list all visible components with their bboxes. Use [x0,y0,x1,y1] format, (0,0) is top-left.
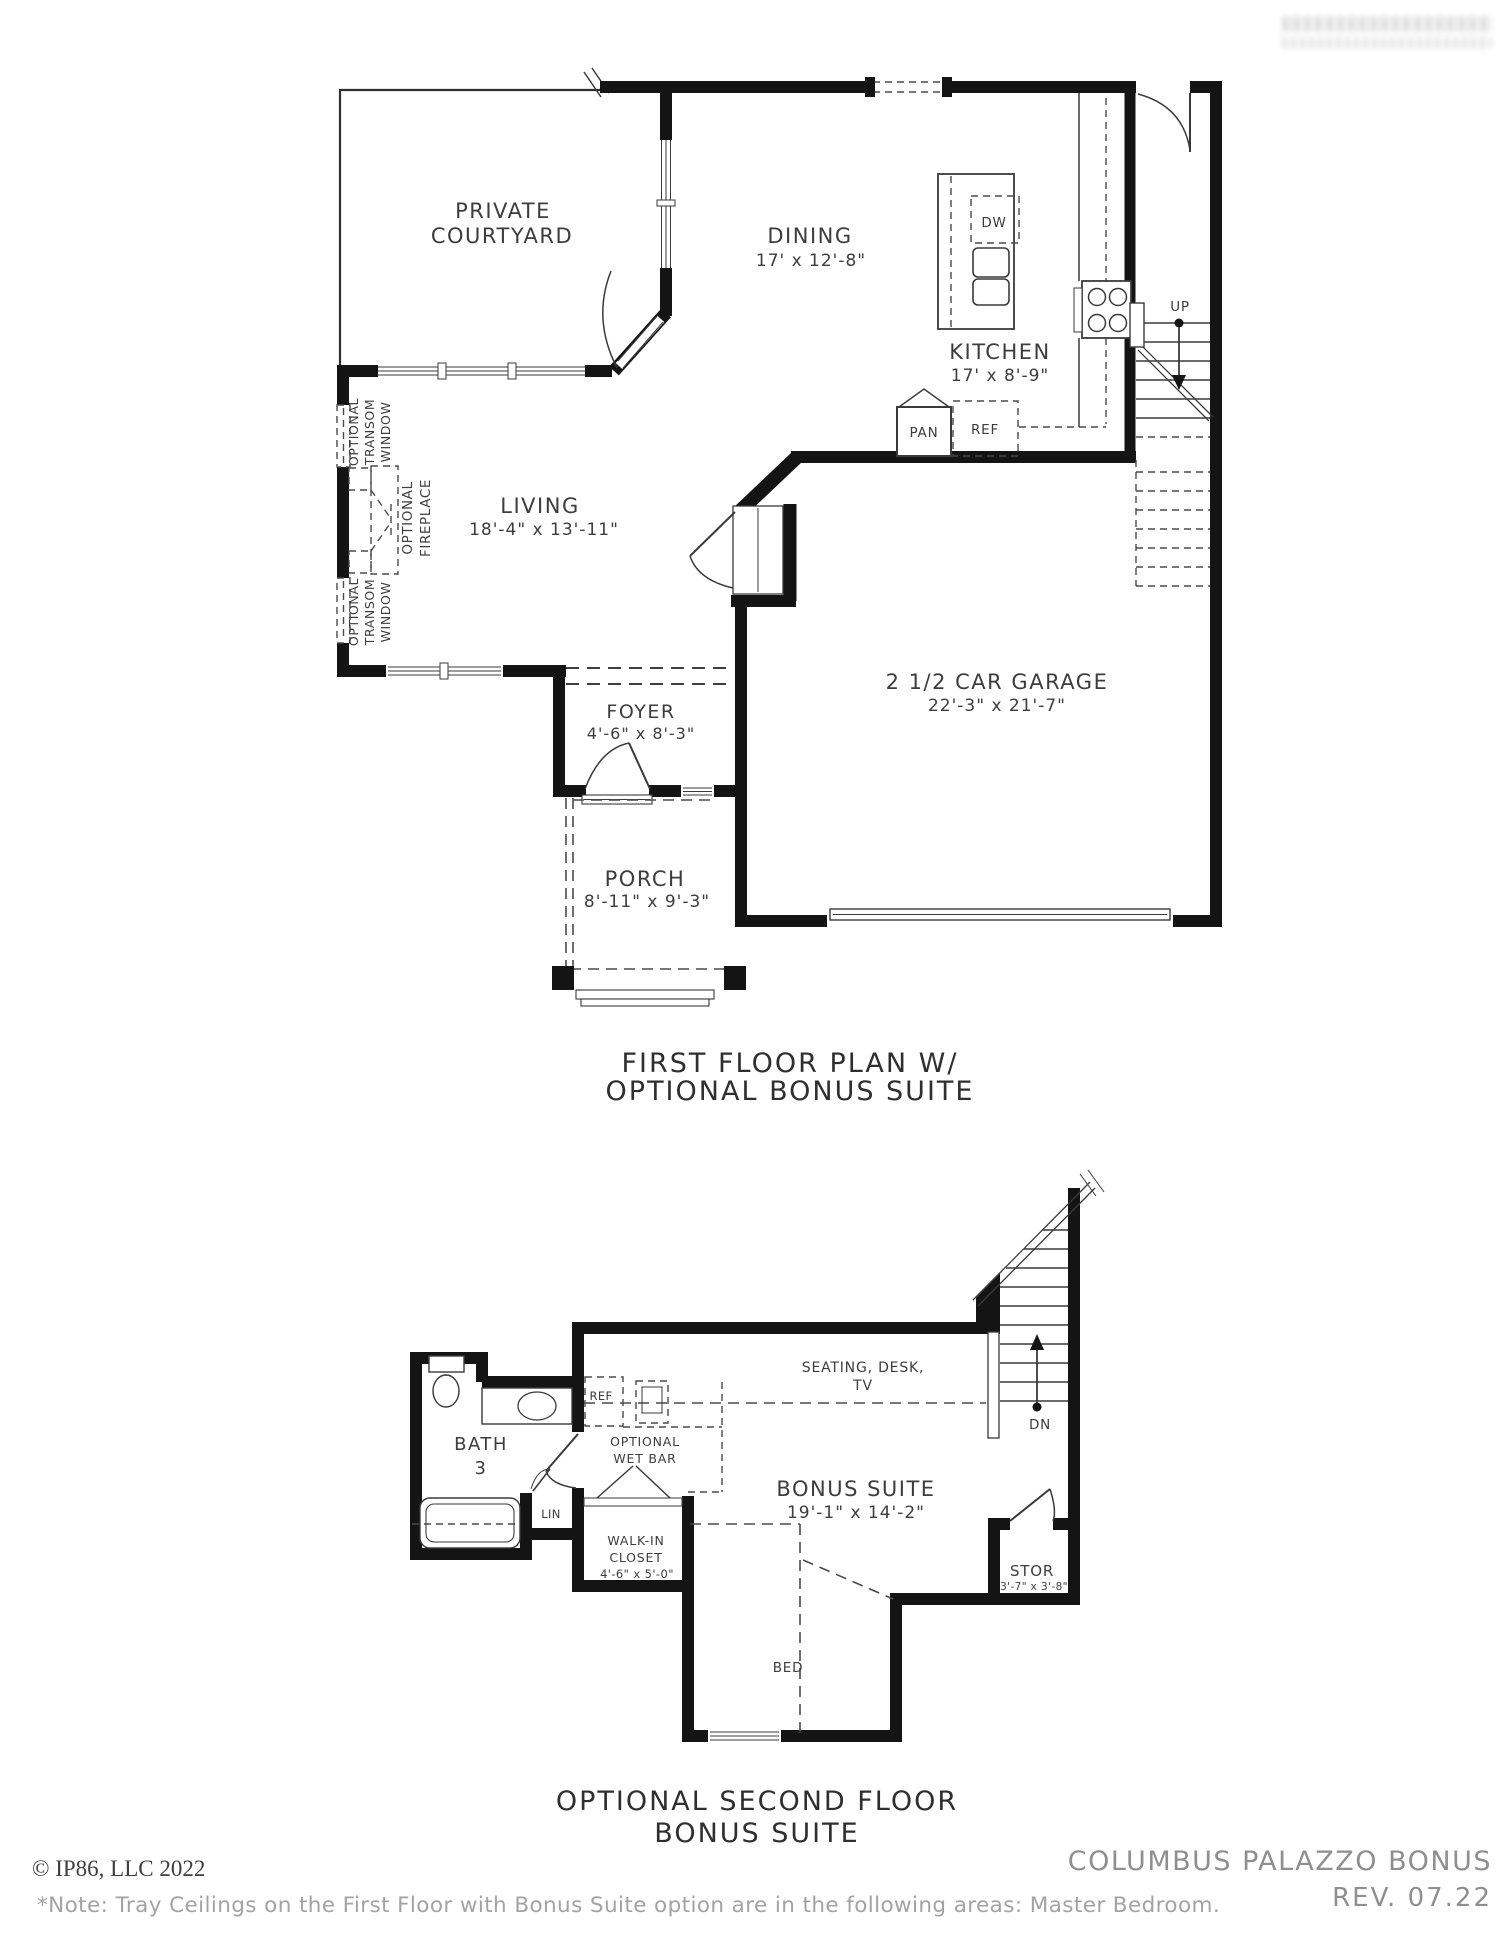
garage-dims: 22'-3" x 21'-7" [928,696,1066,716]
living-dims: 18'-4" x 13'-11" [469,520,619,540]
dw-label: DW [981,215,1006,231]
transom-annotation-top: OPTIONAL TRANSOM WINDOW [346,398,393,466]
bonus-label: BONUS SUITE [776,1477,935,1501]
dining-top-window [865,77,952,97]
lin-label: LIN [541,1507,561,1521]
dining-dims: 17' x 12'-8" [756,251,866,271]
entry-door [1138,93,1190,152]
porch-dims: 8'-11" x 9'-3" [584,892,710,912]
closet-dims: 4'-6" x 5'-0" [600,1567,674,1581]
pantry [897,389,951,456]
seating-label1: SEATING, DESK, [802,1360,924,1376]
annotation-line: WINDOW [378,402,393,463]
copyright-text: © IP86, LLC 2022 [32,1856,205,1881]
storage-door [1010,1489,1054,1521]
closet-label2: CLOSET [609,1550,662,1565]
annotation-line: TRANSOM [362,399,377,466]
sloped-ceiling-lines [690,1524,893,1733]
note-text: *Note: Tray Ceilings on the First Floor … [37,1893,1220,1918]
ref2-label: REF [589,1389,612,1403]
living-window [386,663,503,679]
watermark [1282,16,1492,58]
plan-name: COLUMBUS PALAZZO BONUS [1068,1846,1492,1877]
second-floor-walls [410,1188,1080,1742]
bonus-window [708,1729,781,1743]
bath-sink [482,1388,572,1424]
second-floor-caption-line1: OPTIONAL SECOND FLOOR [556,1786,958,1817]
foyer-label: FOYER [606,701,675,723]
lin-door [531,1469,550,1491]
floorplan-page: PRIVATE COURTYARD DINING 17' x 12'-8" KI… [0,0,1500,1941]
toilet [429,1356,464,1407]
bath-door [546,1434,578,1488]
bath-num: 3 [475,1458,488,1479]
ref-label: REF [971,422,999,438]
bed-label: BED [773,1660,804,1676]
transom-annotation-bottom: OPTIONAL TRANSOM WINDOW [346,578,393,646]
up-label: UP [1170,299,1190,315]
sink-basin [973,279,1009,305]
stor-label: STOR [1010,1562,1054,1580]
living-label: LIVING [500,494,579,518]
garage-door [830,909,1170,920]
up-arrow [1172,319,1186,391]
annotation-line: OPTIONAL [400,481,416,554]
watermark-row [1282,16,1492,32]
fireplace [349,466,398,574]
foyer-opening [566,668,734,684]
courtyard-label2: COURTYARD [431,224,573,248]
annotation-line: WINDOW [378,582,393,643]
kitchen-dims: 17' x 8'-9" [951,366,1049,386]
seating-label2: TV [852,1378,873,1394]
dn-arrow [1030,1334,1044,1412]
revision-text: REV. 07.22 [1332,1883,1492,1913]
fireplace-annotation: OPTIONAL FIREPLACE [400,479,434,557]
foyer-dims: 4'-6" x 8'-3" [587,724,695,743]
wetbar-label2: WET BAR [613,1451,676,1466]
wetbar-label1: OPTIONAL [610,1434,680,1449]
second-floor-caption-line2: BONUS SUITE [654,1818,859,1849]
first-floor-caption-line2: OPTIONAL BONUS SUITE [606,1076,975,1107]
bonus-dims: 19'-1" x 14'-2" [787,1503,925,1523]
courtyard-door [603,271,663,368]
watermark-row [1282,37,1492,49]
closet-label1: WALK-IN [607,1533,664,1548]
range [1074,281,1131,338]
annotation-line: OPTIONAL [346,578,361,646]
stor-dims: 3'-7" x 3'-8" [1000,1581,1068,1593]
porch-label: PORCH [605,867,686,891]
kitchen-label: KITCHEN [949,340,1051,364]
dn-label: DN [1029,1417,1051,1433]
annotation-line: OPTIONAL [346,398,361,466]
annotation-line: TRANSOM [362,579,377,646]
closet-double-doors [584,1466,682,1506]
garage-label: 2 1/2 CAR GARAGE [886,670,1109,694]
floorplan-drawing: PRIVATE COURTYARD DINING 17' x 12'-8" KI… [0,0,1500,1941]
dining-label: DINING [767,224,852,248]
first-floor-caption-line1: FIRST FLOOR PLAN W/ [622,1048,959,1079]
footer: © IP86, LLC 2022 *Note: Tray Ceilings on… [32,1846,1492,1918]
pan-label: PAN [909,425,938,441]
kitchen-island [938,174,1019,329]
coat-closet [690,506,783,594]
front-door [582,743,714,804]
annotation-line: FIREPLACE [418,479,434,557]
stairs-first-floor [1130,303,1213,586]
bathtub [412,1498,520,1548]
second-floor-plan: BATH 3 REF OPTIONAL WET BAR LIN WALK-IN … [410,1170,1104,1849]
bath-label: BATH [454,1434,508,1455]
first-floor-plan: PRIVATE COURTYARD DINING 17' x 12'-8" KI… [336,68,1222,1107]
sink-basin [973,248,1009,277]
courtyard-label: PRIVATE [455,199,551,223]
